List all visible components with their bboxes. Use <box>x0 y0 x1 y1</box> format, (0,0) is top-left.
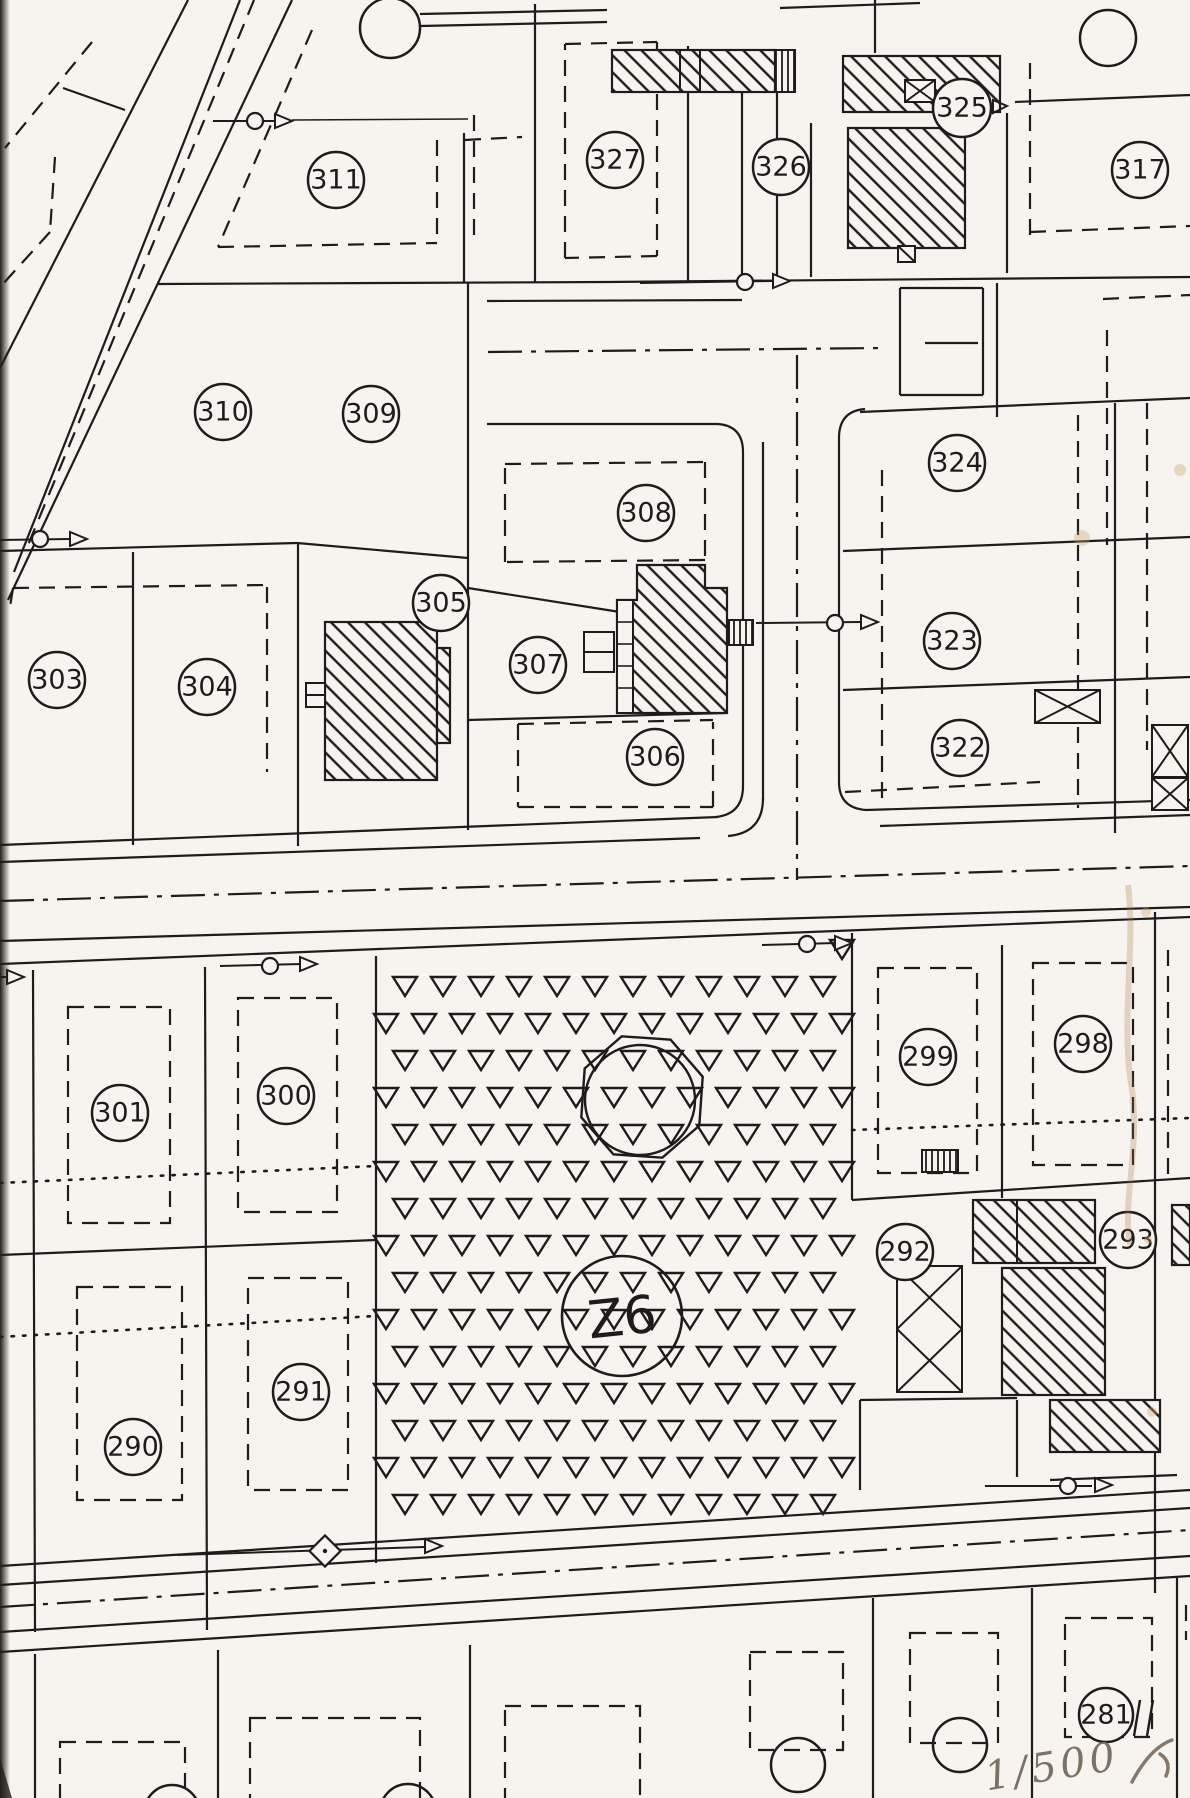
scan-edge-shadow <box>0 0 12 1798</box>
svg-text:326: 326 <box>755 152 807 183</box>
survey-marker <box>756 615 860 631</box>
parcel-label: 305 <box>413 575 469 631</box>
parcel-label: 290 <box>105 1419 161 1475</box>
svg-text:291: 291 <box>275 1377 327 1408</box>
svg-text:299: 299 <box>902 1042 954 1073</box>
svg-text:281: 281 <box>1080 1700 1132 1731</box>
cadastral-map-scan: 3113273263253173103093243083053033043073… <box>0 0 1190 1798</box>
svg-text:324: 324 <box>931 448 983 479</box>
parcel-label: 281 <box>1079 1688 1133 1742</box>
svg-text:300: 300 <box>260 1081 312 1112</box>
svg-text:290: 290 <box>107 1432 159 1463</box>
handwritten-annotations: 1/500 <box>981 1734 1122 1798</box>
survey-marker <box>220 958 302 974</box>
parcel-label: 322 <box>932 720 988 776</box>
parcel-label: 326 <box>753 139 809 195</box>
svg-text:306: 306 <box>629 742 681 773</box>
parcel-label: 324 <box>929 435 985 491</box>
parcel-label: 300 <box>258 1068 314 1124</box>
parcel-label: 310 <box>195 384 251 440</box>
survey-marker <box>985 1478 1092 1494</box>
parcel-label: 304 <box>179 659 235 715</box>
svg-text:292: 292 <box>879 1237 931 1268</box>
scale-annotation: 1/500 <box>981 1734 1122 1798</box>
survey-marker <box>640 274 772 290</box>
parcel-label: 292 <box>877 1224 933 1280</box>
svg-text:311: 311 <box>310 165 362 196</box>
parcel-label: 323 <box>924 613 980 669</box>
parcel-label: 298 <box>1055 1016 1111 1072</box>
parcel-label: 299 <box>900 1029 956 1085</box>
svg-text:308: 308 <box>620 498 672 529</box>
survey-marker <box>762 936 836 952</box>
svg-text:310: 310 <box>197 397 249 428</box>
svg-text:Z6: Z6 <box>585 1285 660 1352</box>
cadastral-map-drawing: 3113273263253173103093243083053033043073… <box>0 0 1190 1798</box>
svg-text:301: 301 <box>94 1098 146 1129</box>
parcel-label: 308 <box>618 485 674 541</box>
svg-text:304: 304 <box>181 672 233 703</box>
svg-text:305: 305 <box>415 588 467 619</box>
parcel-label: 311 <box>308 152 364 208</box>
survey-marker <box>177 1535 424 1566</box>
survey-marker <box>0 531 70 547</box>
buildings <box>306 50 1190 1452</box>
parcel-label: 301 <box>92 1085 148 1141</box>
svg-text:327: 327 <box>589 145 641 176</box>
parcel-label: 303 <box>29 652 85 708</box>
parcel-label: 306 <box>627 729 683 785</box>
parcel-label: 325 <box>933 79 991 137</box>
parcel-label: 307 <box>510 637 566 693</box>
survey-marker <box>213 113 468 129</box>
svg-text:307: 307 <box>512 650 564 681</box>
svg-text:298: 298 <box>1057 1029 1109 1060</box>
parcel-label: 291 <box>273 1364 329 1420</box>
svg-text:325: 325 <box>936 93 988 124</box>
parcel-boundaries <box>0 0 1190 1798</box>
parcel-label: 317 <box>1112 142 1168 198</box>
triangle-pattern-area <box>374 940 854 1514</box>
svg-text:317: 317 <box>1114 155 1166 186</box>
scan-stains <box>1074 464 1186 1782</box>
svg-text:323: 323 <box>926 626 978 657</box>
svg-text:303: 303 <box>31 665 83 696</box>
parcel-label: 327 <box>587 132 643 188</box>
parcel-label: 309 <box>343 386 399 442</box>
svg-text:322: 322 <box>934 733 986 764</box>
svg-text:309: 309 <box>345 399 397 430</box>
